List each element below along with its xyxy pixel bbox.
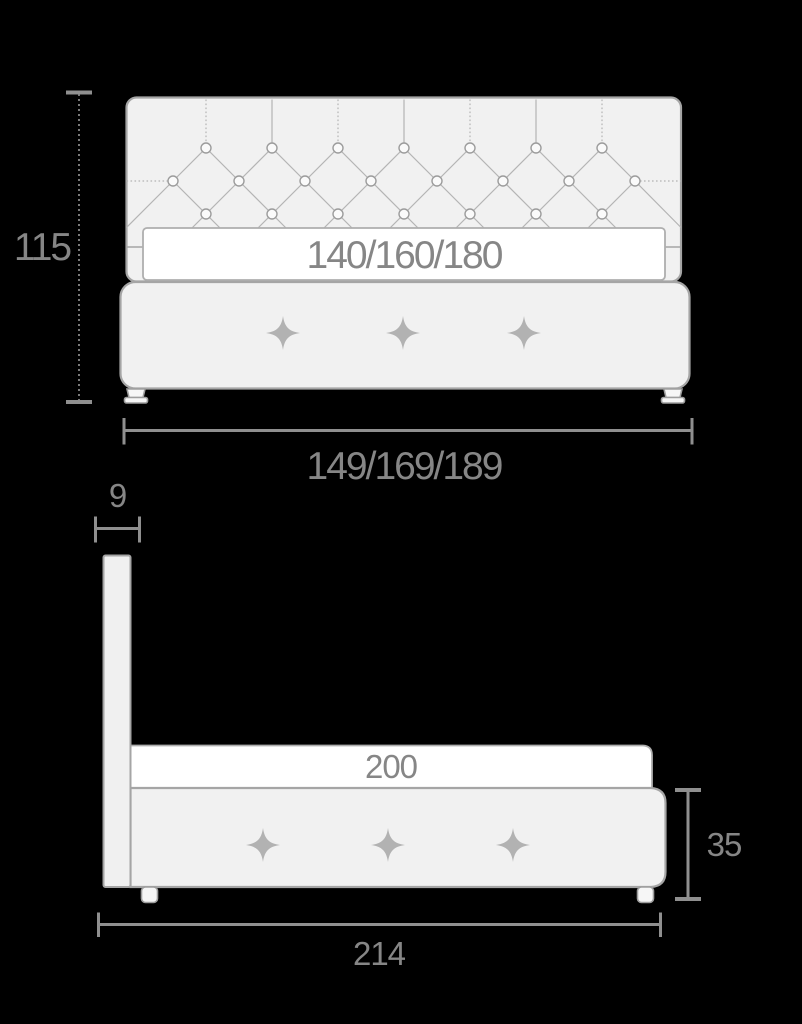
tuft-button — [168, 176, 178, 186]
headboard-depth-label: 9 — [109, 477, 126, 514]
side-right-leg — [638, 887, 654, 903]
overall-width-dimension: 149/169/189 — [124, 418, 692, 488]
headboard-depth-dimension: 9 — [96, 477, 140, 543]
overall-width-label: 149/169/189 — [307, 445, 502, 488]
tuft-button — [531, 209, 541, 219]
front-right-leg — [662, 389, 685, 403]
tuft-button — [366, 176, 376, 186]
leg-foot — [662, 398, 685, 404]
base-height-dimension: 35 — [675, 790, 741, 899]
tuft-button — [597, 209, 607, 219]
tuft-button — [267, 209, 277, 219]
side-left-leg — [142, 887, 158, 903]
tuft-button — [399, 143, 409, 153]
leg-foot — [125, 398, 148, 404]
bed-dimension-diagram: 140/160/180 115 149/169/189 — [0, 0, 802, 1024]
tuft-button — [201, 143, 211, 153]
base-height-label: 35 — [707, 826, 742, 863]
leg-stem — [664, 389, 682, 398]
leg-stem — [127, 389, 145, 398]
tuft-button — [333, 143, 343, 153]
overall-length-dimension: 214 — [99, 913, 661, 973]
diagram-canvas: 140/160/180 115 149/169/189 — [0, 0, 802, 1024]
tuft-button — [333, 209, 343, 219]
tuft-button — [597, 143, 607, 153]
tuft-button — [564, 176, 574, 186]
front-view: 140/160/180 115 149/169/189 — [14, 93, 692, 489]
tuft-button — [465, 209, 475, 219]
tuft-button — [201, 209, 211, 219]
tuft-button — [531, 143, 541, 153]
tuft-button — [465, 143, 475, 153]
side-view: 200 9 35 214 — [96, 477, 742, 972]
tuft-button — [300, 176, 310, 186]
tuft-button — [498, 176, 508, 186]
bed-base-side — [131, 788, 666, 887]
tuft-button — [234, 176, 244, 186]
height-dimension-label: 115 — [14, 226, 71, 269]
overall-length-label: 214 — [353, 935, 406, 972]
tuft-button — [267, 143, 277, 153]
tuft-button — [399, 209, 409, 219]
tuft-button — [630, 176, 640, 186]
tuft-button — [432, 176, 442, 186]
height-dimension: 115 — [14, 93, 92, 403]
headboard-side — [104, 556, 131, 888]
mattress-length-label: 200 — [365, 748, 418, 785]
front-left-leg — [125, 389, 148, 403]
mattress-width-label: 140/160/180 — [307, 234, 503, 277]
